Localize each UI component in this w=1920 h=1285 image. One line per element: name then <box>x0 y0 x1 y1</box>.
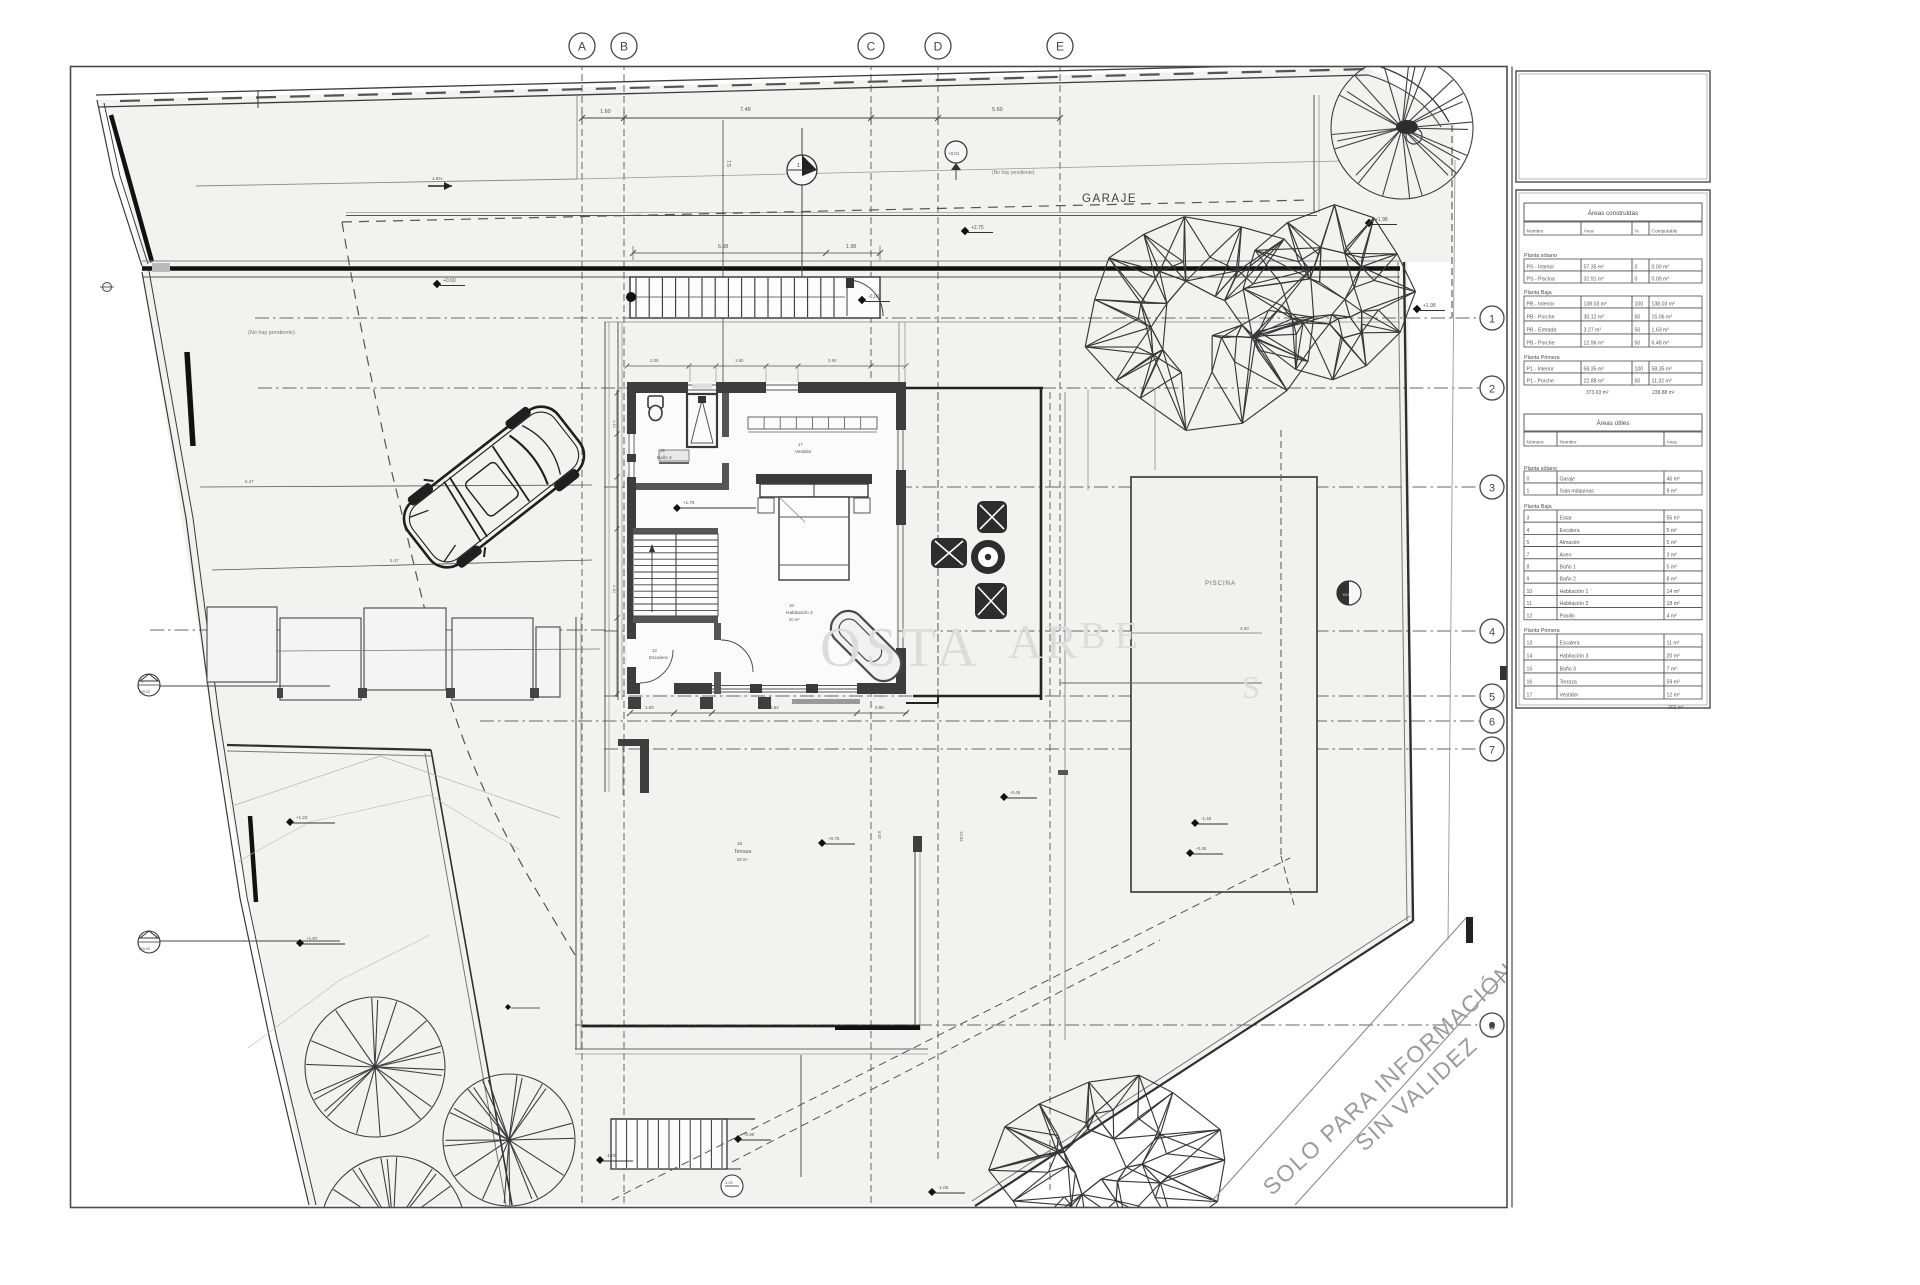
svg-text:50: 50 <box>1635 341 1641 347</box>
svg-text:100: 100 <box>1635 302 1644 308</box>
svg-text:C: C <box>867 40 876 54</box>
svg-text:5.60: 5.60 <box>992 107 1003 113</box>
svg-text:Terraza: Terraza <box>734 849 751 855</box>
svg-text:17: 17 <box>1527 693 1533 699</box>
svg-text:-1.05: -1.05 <box>606 1153 617 1158</box>
svg-text:Baño 1: Baño 1 <box>1560 565 1577 571</box>
svg-text:+0.00: +0.00 <box>1342 592 1353 597</box>
svg-text:PB - Porche: PB - Porche <box>1527 315 1555 321</box>
svg-text:-1.05: -1.05 <box>938 1185 949 1190</box>
svg-text:18 m²: 18 m² <box>1667 601 1681 607</box>
svg-text:1.00: 1.00 <box>645 705 654 710</box>
svg-text:Nombre: Nombre <box>1560 440 1577 446</box>
svg-text:50: 50 <box>1635 328 1641 334</box>
svg-text:B E: B E <box>1080 615 1138 657</box>
svg-text:7.5: 7.5 <box>725 160 731 167</box>
svg-text:1: 1 <box>797 163 800 169</box>
svg-text:Escalera: Escalera <box>1560 641 1580 647</box>
svg-text:3.27 m²: 3.27 m² <box>1584 328 1602 334</box>
svg-text:373.63 m²: 373.63 m² <box>1586 390 1609 396</box>
svg-text:30.12 m²: 30.12 m² <box>1584 315 1605 321</box>
svg-text:Planta Baja: Planta Baja <box>1524 504 1552 510</box>
svg-text:-0.01: -0.01 <box>868 294 880 300</box>
svg-text:46 m²: 46 m² <box>1667 477 1681 483</box>
svg-text:14: 14 <box>1527 654 1533 660</box>
svg-text:Aseo: Aseo <box>1560 552 1572 558</box>
svg-text:8: 8 <box>1527 565 1530 571</box>
svg-text:32.91 m²: 32.91 m² <box>1584 277 1605 283</box>
svg-text:0.90: 0.90 <box>875 705 884 710</box>
svg-text:138.03 m²: 138.03 m² <box>1584 302 1608 308</box>
svg-text:2.60: 2.60 <box>828 358 837 363</box>
svg-text:Vestidor: Vestidor <box>795 449 812 454</box>
svg-text:7: 7 <box>1527 552 1530 558</box>
svg-text:Almacén: Almacén <box>1560 540 1580 546</box>
svg-text:Área: Área <box>1584 228 1594 235</box>
svg-text:Terraza: Terraza <box>1560 680 1577 686</box>
svg-text:S: S <box>1242 669 1260 705</box>
svg-text:2: 2 <box>1489 384 1495 396</box>
svg-text:PISCINA: PISCINA <box>1205 581 1236 587</box>
svg-text:11.32 m²: 11.32 m² <box>1652 379 1672 385</box>
svg-text:Planta sótano: Planta sótano <box>1524 253 1557 259</box>
svg-text:7: 7 <box>1489 745 1495 757</box>
svg-text:PB - Entrada: PB - Entrada <box>1527 328 1557 334</box>
svg-text:+0.75: +0.75 <box>828 836 840 841</box>
svg-text:22.88 m²: 22.88 m² <box>1584 379 1605 385</box>
svg-text:13.63: 13.63 <box>959 831 964 842</box>
svg-text:5.47: 5.47 <box>390 558 399 563</box>
svg-text:12.96 m²: 12.96 m² <box>1584 341 1605 347</box>
svg-text:9 m²: 9 m² <box>1667 489 1678 495</box>
svg-text:16: 16 <box>737 841 742 846</box>
svg-text:-0.45: -0.45 <box>1196 846 1207 851</box>
svg-text:E: E <box>1056 40 1064 54</box>
svg-text:+0.60: +0.60 <box>443 278 456 284</box>
svg-text:14 m²: 14 m² <box>1667 589 1681 595</box>
svg-text:1.90: 1.90 <box>735 358 744 363</box>
svg-text:-0.45: -0.45 <box>1010 790 1021 795</box>
svg-text:12 m²: 12 m² <box>1667 693 1681 699</box>
svg-text:238.88 m²: 238.88 m² <box>1652 390 1675 396</box>
svg-text:302 m²: 302 m² <box>1668 705 1684 711</box>
svg-text:15: 15 <box>660 448 665 453</box>
svg-text:1.60: 1.60 <box>600 109 611 115</box>
svg-text:5 m²: 5 m² <box>1667 540 1678 546</box>
svg-text:Vestidor: Vestidor <box>1560 693 1579 699</box>
svg-text:20 m²: 20 m² <box>789 617 800 622</box>
svg-text:Escalera: Escalera <box>1560 528 1580 534</box>
svg-text:A: A <box>578 40 586 54</box>
svg-text:7 m²: 7 m² <box>1667 667 1678 673</box>
svg-text:Habitación 2: Habitación 2 <box>1560 601 1589 607</box>
svg-text:7.48: 7.48 <box>740 107 751 113</box>
svg-text:Sala máquinas: Sala máquinas <box>1560 489 1595 495</box>
svg-text:+0.01: +0.01 <box>948 151 960 156</box>
svg-text:13: 13 <box>1527 641 1533 647</box>
svg-text:200.02: 200.02 <box>139 690 150 694</box>
svg-text:50: 50 <box>1635 379 1641 385</box>
svg-text:1.10: 1.10 <box>612 420 617 429</box>
svg-text:2.40: 2.40 <box>612 585 617 594</box>
svg-text:3.62: 3.62 <box>770 705 779 710</box>
svg-text:Estar: Estar <box>1560 516 1572 522</box>
svg-text:5.47: 5.47 <box>245 479 254 484</box>
svg-text:+1.98: +1.98 <box>1423 303 1436 309</box>
svg-text:16: 16 <box>789 603 794 608</box>
svg-text:5 m²: 5 m² <box>1667 528 1678 534</box>
svg-text:Número: Número <box>1527 440 1544 446</box>
svg-text:1: 1 <box>1527 489 1530 495</box>
svg-text:Áreas útiles: Áreas útiles <box>1597 418 1630 427</box>
svg-text:P1 - Interior: P1 - Interior <box>1527 367 1554 373</box>
svg-text:57.35 m²: 57.35 m² <box>1584 265 1605 271</box>
svg-text:4: 4 <box>1489 627 1495 639</box>
svg-text:0: 0 <box>1635 265 1638 271</box>
svg-text:GARAJE: GARAJE <box>1082 193 1137 205</box>
svg-text:Garaje: Garaje <box>1560 477 1576 483</box>
svg-text:200.02: 200.02 <box>139 947 150 951</box>
svg-text:4.00: 4.00 <box>1240 626 1249 631</box>
svg-text:11: 11 <box>1527 601 1532 607</box>
svg-text:55 m²: 55 m² <box>1667 516 1681 522</box>
svg-text:3: 3 <box>1527 516 1530 522</box>
svg-text:5: 5 <box>1527 540 1530 546</box>
svg-text:11 m²: 11 m² <box>1667 641 1680 647</box>
svg-text:9: 9 <box>1527 577 1530 583</box>
svg-text:88 m²: 88 m² <box>737 857 748 862</box>
svg-text:0: 0 <box>1635 277 1638 283</box>
svg-text:3: 3 <box>1489 483 1495 495</box>
svg-text:5: 5 <box>1489 692 1495 704</box>
svg-text:Nombre: Nombre <box>1527 229 1544 235</box>
svg-text:16: 16 <box>1527 680 1533 686</box>
svg-text:(No hay pendiente): (No hay pendiente) <box>248 330 295 336</box>
svg-text:10: 10 <box>1527 589 1533 595</box>
svg-text:AR: AR <box>1008 616 1081 669</box>
svg-text:1.98: 1.98 <box>846 244 856 250</box>
svg-text:Habitación 3: Habitación 3 <box>786 610 813 616</box>
svg-text:2.05: 2.05 <box>650 358 659 363</box>
svg-text:+1.23: +1.23 <box>296 815 308 820</box>
svg-text:PB - Interior: PB - Interior <box>1527 302 1555 308</box>
svg-text:15.06 m²: 15.06 m² <box>1652 315 1673 321</box>
svg-text:+2.75: +2.75 <box>971 225 984 231</box>
svg-text:Habitación 3: Habitación 3 <box>1560 654 1589 660</box>
svg-text:P1 - Porche: P1 - Porche <box>1527 379 1555 385</box>
svg-text:6: 6 <box>1489 717 1495 729</box>
svg-text:-1.40: -1.40 <box>1201 816 1212 821</box>
svg-text:+1.87: +1.87 <box>306 936 318 941</box>
svg-text:59 m²: 59 m² <box>1667 680 1681 686</box>
svg-text:Pasillo: Pasillo <box>1560 613 1575 619</box>
svg-text:-1.05: -1.05 <box>724 1181 733 1185</box>
svg-text:0.00 m²: 0.00 m² <box>1652 265 1670 271</box>
svg-text:Áreas construidas: Áreas construidas <box>1588 208 1638 217</box>
svg-text:138.03 m²: 138.03 m² <box>1652 302 1676 308</box>
svg-text:3 m²: 3 m² <box>1667 552 1678 558</box>
svg-text:0: 0 <box>1527 477 1530 483</box>
svg-text:Planta Baja: Planta Baja <box>1524 290 1552 296</box>
svg-text:Baño 3: Baño 3 <box>657 455 672 460</box>
svg-text:12: 12 <box>1527 613 1533 619</box>
svg-text:PB - Porche: PB - Porche <box>1527 341 1555 347</box>
svg-text:20 m²: 20 m² <box>1667 654 1681 660</box>
svg-text:15: 15 <box>1527 667 1533 673</box>
svg-text:Área: Área <box>1667 439 1677 446</box>
svg-text:+1.70: +1.70 <box>683 500 695 505</box>
svg-text:58.35 m²: 58.35 m² <box>1584 367 1605 373</box>
svg-text:Planta Primera: Planta Primera <box>1524 355 1560 361</box>
svg-text:Computable: Computable <box>1652 229 1678 235</box>
svg-text:8 m²: 8 m² <box>1667 577 1678 583</box>
svg-text:(No hay pendiente): (No hay pendiente) <box>992 170 1035 176</box>
svg-text:Escalera: Escalera <box>649 655 668 661</box>
svg-text:1.6%: 1.6% <box>432 176 442 181</box>
svg-text:1: 1 <box>1489 314 1495 326</box>
svg-text:PS - Piscina: PS - Piscina <box>1527 277 1555 283</box>
svg-text:9.81: 9.81 <box>877 831 882 840</box>
svg-text:4 m²: 4 m² <box>1667 613 1678 619</box>
svg-text:%: % <box>1635 229 1640 235</box>
svg-text:Habitación 1: Habitación 1 <box>1560 589 1589 595</box>
svg-text:50: 50 <box>1635 315 1641 321</box>
svg-text:6.48 m²: 6.48 m² <box>1652 341 1670 347</box>
svg-text:OSTA: OSTA <box>820 617 982 679</box>
svg-text:Planta Primera: Planta Primera <box>1524 628 1560 634</box>
svg-text:1.63 m²: 1.63 m² <box>1652 328 1670 334</box>
svg-text:PS - Interior: PS - Interior <box>1527 265 1555 271</box>
svg-text:6.98: 6.98 <box>718 244 728 250</box>
svg-text:B: B <box>620 40 628 54</box>
svg-text:Baño 2: Baño 2 <box>1560 577 1577 583</box>
svg-text:13: 13 <box>652 648 657 653</box>
svg-text:Baño 3: Baño 3 <box>1560 667 1577 673</box>
svg-text:D: D <box>934 40 943 54</box>
svg-text:100: 100 <box>1635 367 1644 373</box>
svg-text:4: 4 <box>1527 528 1530 534</box>
svg-text:5 m²: 5 m² <box>1667 565 1678 571</box>
svg-text:58.35 m²: 58.35 m² <box>1652 367 1673 373</box>
svg-text:17: 17 <box>798 442 803 447</box>
svg-text:0.00 m²: 0.00 m² <box>1652 277 1670 283</box>
